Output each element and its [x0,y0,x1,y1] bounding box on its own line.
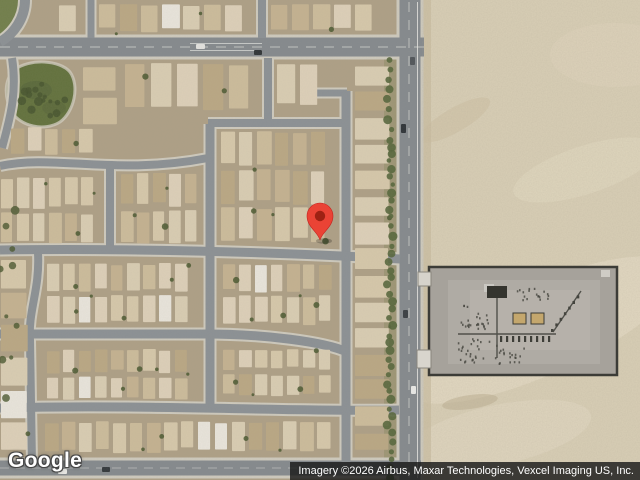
map-viewport[interactable]: Google Imagery ©2026 Airbus, Maxar Techn… [0,0,640,480]
attribution-text: Imagery ©2026 Airbus, Maxar Technologies… [298,465,634,477]
satellite-imagery [0,0,640,480]
desert-noise [422,0,640,480]
substation [417,267,617,375]
google-logo[interactable]: Google [8,449,82,473]
residential-noise [0,0,422,480]
imagery-attribution: Imagery ©2026 Airbus, Maxar Technologies… [290,462,640,480]
